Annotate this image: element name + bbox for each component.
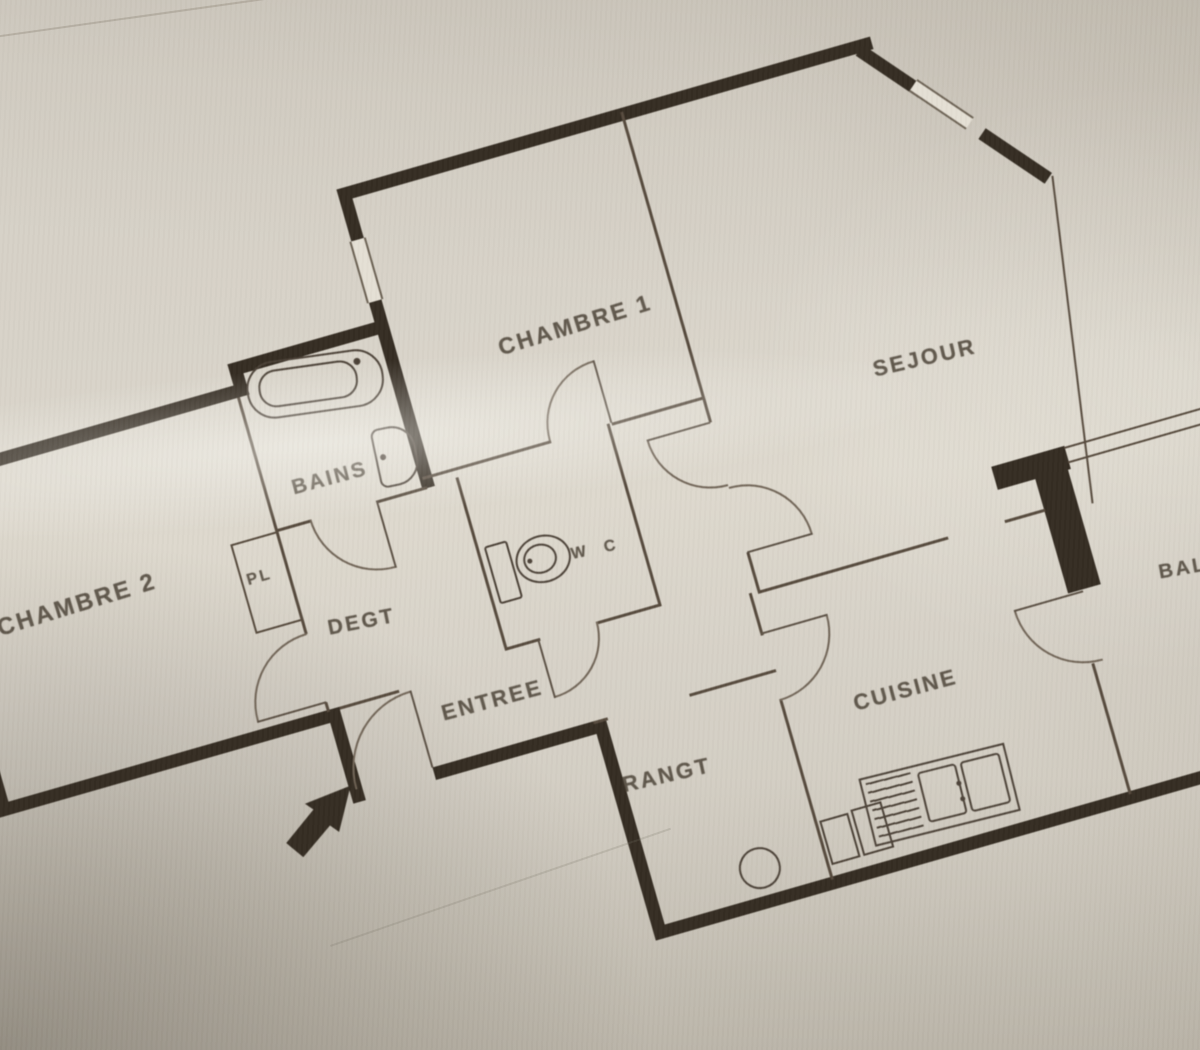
- room-label-cuisine: CUISINE: [851, 664, 961, 717]
- partition-wall: [504, 638, 540, 651]
- toilet-icon: [484, 524, 582, 609]
- door-arc: [760, 615, 847, 702]
- paper-crease: [0, 0, 336, 38]
- partition-wall: [278, 520, 312, 532]
- room-label-chambre-2: CHAMBRE 2: [0, 568, 160, 643]
- exterior-wall: [336, 37, 873, 202]
- room-label-degt: DEGT: [326, 604, 398, 641]
- door-arc: [729, 468, 813, 552]
- door-arc: [531, 360, 611, 440]
- window: [909, 79, 974, 129]
- room-label-balcon: BAL: [1157, 553, 1200, 584]
- room-label-wc: W C: [569, 536, 624, 564]
- water-heater-icon: [734, 842, 786, 894]
- washbasin-tap: [380, 454, 387, 461]
- exterior-wall: [978, 128, 1052, 184]
- exterior-wall: [0, 707, 343, 818]
- floor-plan-photo: CHAMBRE 1 SEJOUR BAINS CHAMBRE 2 PL DEGT…: [0, 0, 1200, 1050]
- room-label-sejour: SEJOUR: [870, 333, 979, 382]
- door-arc: [538, 621, 615, 698]
- partition-wall: [780, 700, 834, 880]
- room-label-rangt: RANGT: [620, 752, 714, 798]
- room-label-bains: BAINS: [289, 457, 370, 500]
- exterior-wall: [593, 718, 668, 941]
- partition-wall: [611, 396, 704, 425]
- partition-wall: [746, 552, 761, 594]
- floor-plan: CHAMBRE 1 SEJOUR BAINS CHAMBRE 2 PL DEGT…: [0, 0, 1200, 1050]
- partition-wall: [1091, 663, 1131, 795]
- partition-wall: [598, 603, 661, 624]
- balcony-wall-pier: [1029, 447, 1101, 594]
- door-arc: [237, 633, 326, 722]
- window: [349, 237, 383, 303]
- exterior-wall: [0, 477, 12, 817]
- partition-wall: [1004, 509, 1045, 523]
- partition-wall: [377, 486, 428, 503]
- partition-wall: [757, 536, 948, 593]
- partition-wall: [620, 112, 712, 423]
- exterior-wall: [432, 720, 603, 780]
- partition-wall: [749, 593, 764, 636]
- room-label-entree: ENTREE: [439, 674, 546, 726]
- exterior-wall: [0, 384, 243, 493]
- door-arc: [1014, 591, 1103, 680]
- room-label-chambre-1: CHAMBRE 1: [495, 289, 655, 361]
- door-arc: [309, 501, 396, 588]
- partition-wall: [422, 440, 552, 480]
- door-arc: [647, 423, 729, 505]
- partition-wall: [689, 669, 776, 697]
